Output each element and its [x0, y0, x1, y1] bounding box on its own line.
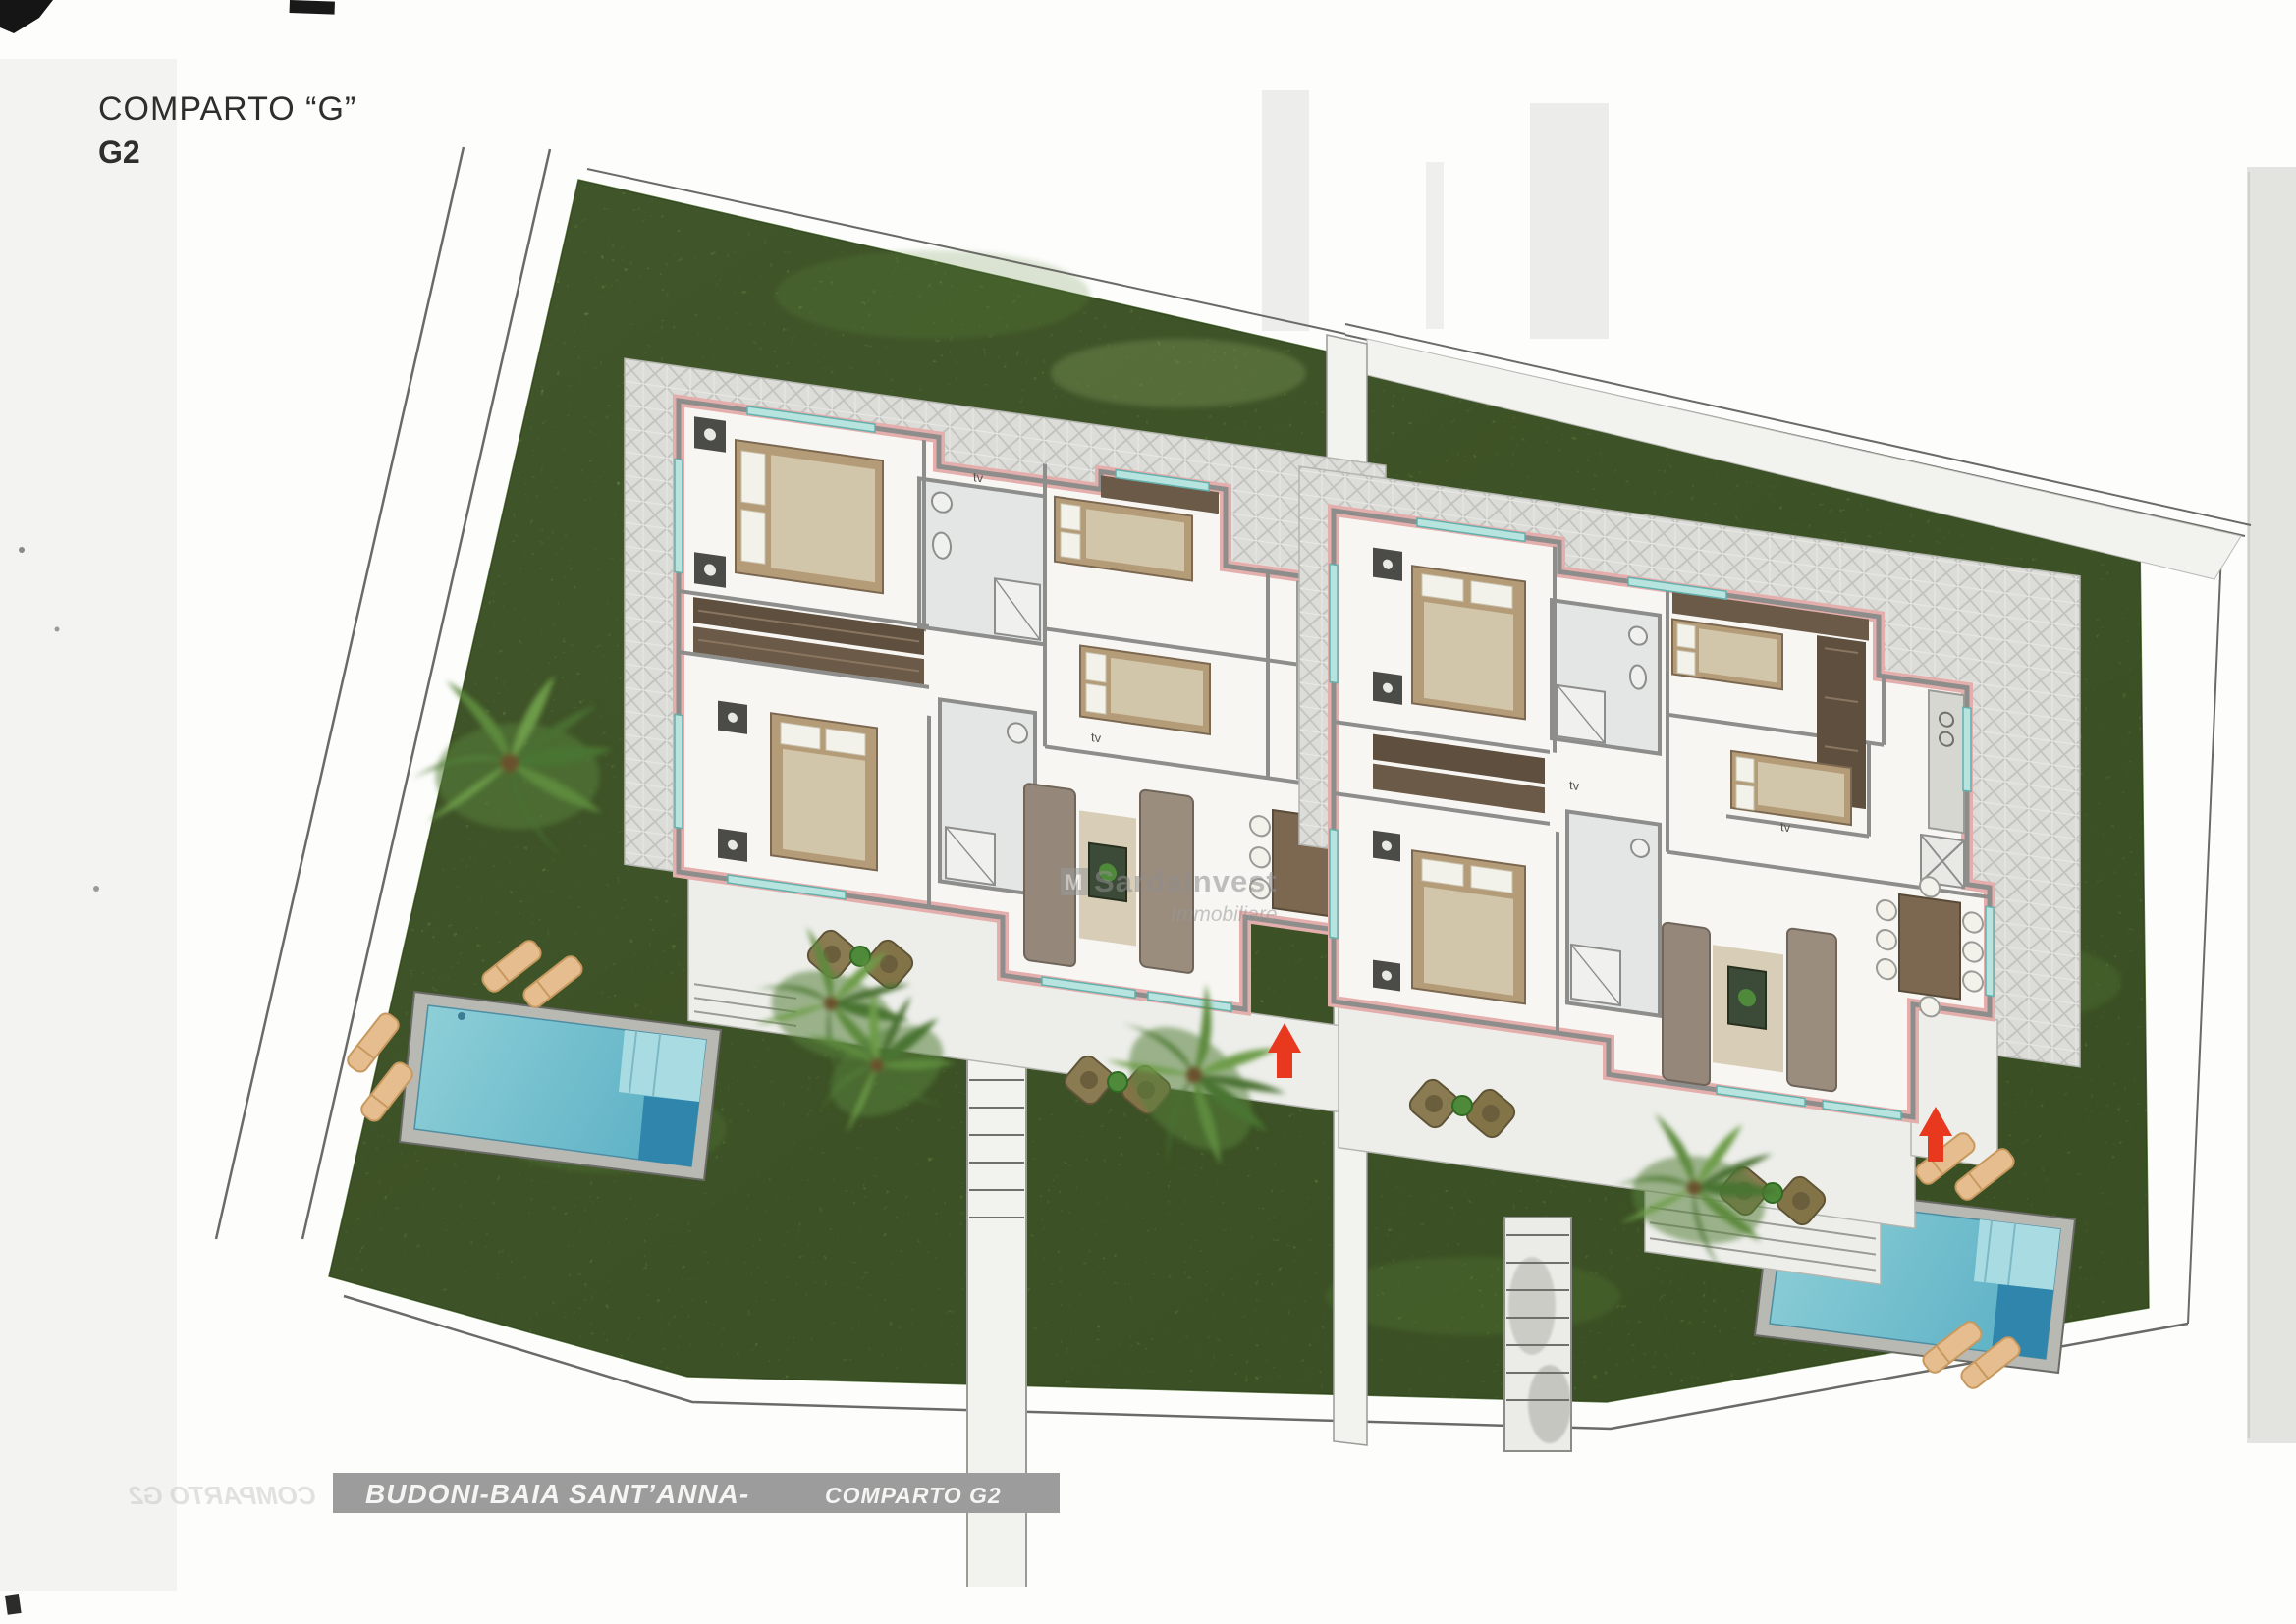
- banner-location: BUDONI-BAIA SANT’ANNA-: [365, 1479, 749, 1509]
- tv-label: tv: [1569, 778, 1580, 793]
- banner-section: COMPARTO G2: [825, 1483, 1002, 1508]
- watermark-brand: SardaInvest: [1094, 864, 1278, 898]
- scan-streak: [1262, 90, 1309, 331]
- scanned-plan-page: tv tv: [0, 0, 2296, 1624]
- tv-label: tv: [973, 469, 984, 485]
- page-title: COMPARTO “G”: [98, 90, 356, 128]
- tv-label: tv: [1780, 819, 1791, 835]
- scan-streak: [1426, 162, 1444, 329]
- right-edge-strip: [2247, 167, 2296, 1443]
- stairs-central: [1504, 1218, 1571, 1451]
- left-margin-shade: [0, 59, 177, 1591]
- scan-corner-mark: [5, 1594, 22, 1615]
- scan-streak: [1530, 103, 1609, 339]
- tv-label: tv: [1091, 730, 1102, 745]
- banner-ghost-text: COMPARTO G2: [129, 1481, 316, 1510]
- scan-dash-mark: [290, 0, 335, 15]
- sofa: [1787, 928, 1836, 1092]
- page-subtitle: G2: [98, 135, 140, 170]
- watermark-logo: M: [1065, 870, 1082, 894]
- sofa: [1663, 922, 1710, 1086]
- watermark-sub: Immobiliare: [1171, 903, 1278, 926]
- site-plan-svg: tv tv: [0, 0, 2296, 1624]
